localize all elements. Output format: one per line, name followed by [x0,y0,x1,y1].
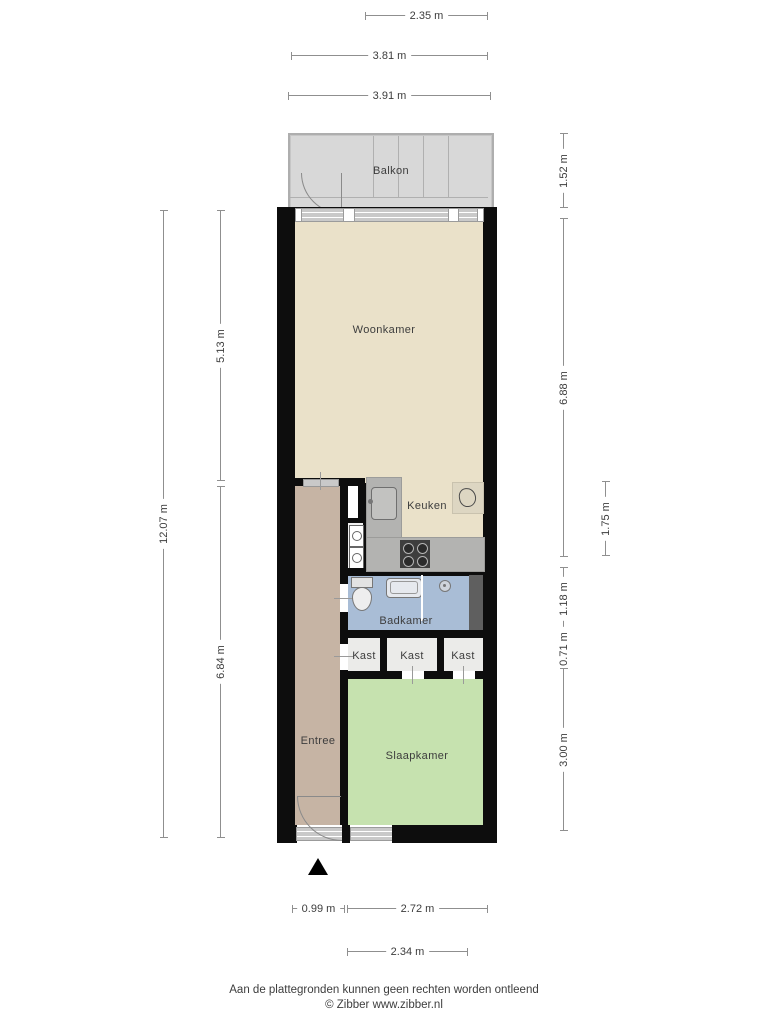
stove-burner-icon [403,543,414,554]
washbasin-inner [390,581,418,594]
dimension-label: 1.75 m [600,497,612,541]
door-tick [334,598,354,599]
dimension-label: 3.00 m [558,728,570,772]
floorplan-canvas: Balkon [0,0,768,1024]
room-label-keuken: Keuken [407,500,447,512]
room-label-entree: Entree [301,735,336,747]
wall-left [277,207,295,843]
room-label-kast3: Kast [451,650,475,662]
footer-disclaimer: Aan de plattegronden kunnen geen rechten… [0,984,768,996]
wall-kast-divider [437,638,444,674]
dimension-top-2: 3.81 m [291,55,488,56]
wall-bottom [392,825,497,843]
dimension-bottom-bedroom: 2.72 m [347,908,488,909]
shaft [469,575,483,630]
dimension-label: 6.84 m [215,640,227,684]
dimension-label: 3.81 m [368,50,412,62]
dimension-left-lower: 6.84 m [220,486,221,838]
door-tick [412,666,413,684]
dryer-drum [352,553,362,563]
dimension-label: 2.34 m [386,946,430,958]
dimension-right-closet: 0.71 m [563,632,564,666]
dimension-label: 2.72 m [396,903,440,915]
dimension-left-upper: 5.13 m [220,210,221,481]
dimension-bottom-window: 2.34 m [347,951,468,952]
window-post [477,208,484,222]
dimension-label: 6.88 m [558,366,570,410]
kitchen-sink-icon [371,487,397,520]
door-tick [463,666,464,684]
kast2-door-opening [402,671,424,679]
balcony-divider [423,136,424,197]
dimension-label: 3.91 m [368,90,412,102]
balcony-divider [448,136,449,197]
entree-door-slider [303,479,339,487]
dimension-label: 2.35 m [405,10,449,22]
window-post [295,208,302,222]
balcony-door-opening [343,208,355,222]
north-arrow-icon [308,858,328,875]
dimension-right-balcony: 1.52 m [563,133,564,208]
woonkamer-floor [295,222,483,483]
room-label-slaapkamer: Slaapkamer [386,750,449,762]
stove-burner-icon [417,556,428,567]
room-label-balkon: Balkon [373,165,409,177]
dimension-bottom-entree: 0.99 m [292,908,345,909]
stove-burner-icon [417,543,428,554]
window-post [448,208,459,222]
kitchen-faucet-icon [368,499,373,504]
stove-burner-icon [403,556,414,567]
footer-credit: © Zibber www.zibber.nl [0,999,768,1011]
dimension-right-living: 6.88 m [563,218,564,557]
entrance-door-leaf [297,796,341,797]
dimension-right-bedroom: 3.00 m [563,668,564,831]
dimension-label: 5.13 m [215,324,227,368]
dimension-right-kitchen: 1.75 m [605,481,606,556]
room-label-badkamer: Badkamer [379,615,432,627]
wall-kast-divider [380,638,387,674]
dimension-right-bath: 1.18 m [563,567,564,630]
shower-drain-dot [443,584,446,587]
dimension-label: 1.52 m [558,149,570,193]
window-bottom [350,827,394,841]
dimension-label: 12.07 m [158,499,170,549]
dimension-label: 0.71 m [558,627,570,671]
room-label-kast1: Kast [352,650,376,662]
room-label-woonkamer: Woonkamer [353,324,416,336]
wall-keuken-entree [358,483,366,522]
kast3-door-opening [453,671,475,679]
dimension-left-total: 12.07 m [163,210,164,838]
dimension-label: 0.99 m [297,903,341,915]
door-tick [334,656,354,657]
wall-bottom [342,825,350,843]
wall-badkamer-bottom [340,630,483,638]
washing-machine-drum [352,531,362,541]
dimension-label: 1.18 m [558,577,570,621]
wall-bottom [277,825,297,843]
room-label-kast2: Kast [400,650,424,662]
wall-right [483,207,497,843]
dimension-top-3: 3.91 m [288,95,491,96]
dimension-top-1: 2.35 m [365,15,488,16]
kast1-door-opening [340,644,348,670]
door-tick [320,472,321,490]
